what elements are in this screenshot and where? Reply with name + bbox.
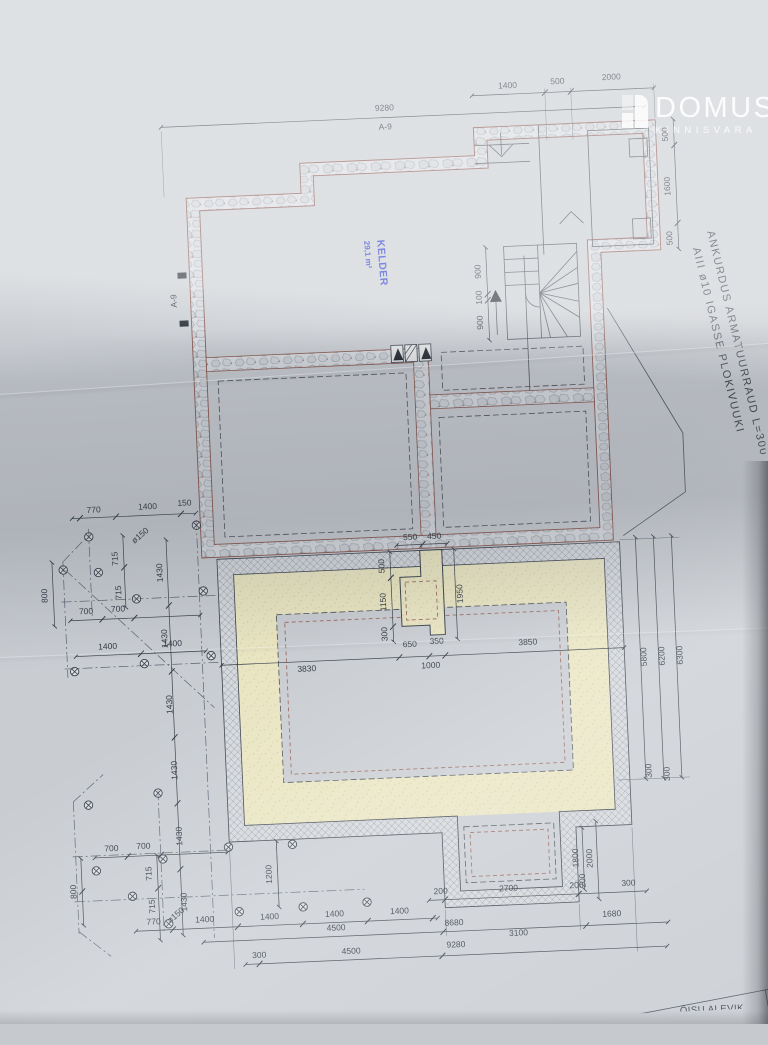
stair-direction-arrow bbox=[489, 290, 502, 303]
section-mark bbox=[177, 272, 186, 278]
dimension-label: 1200 bbox=[263, 864, 274, 884]
pile-marker bbox=[299, 903, 308, 912]
dimension-label: 350 bbox=[429, 636, 444, 647]
dimension-label: 150 bbox=[177, 497, 192, 508]
dimension-label: 500 bbox=[550, 76, 565, 87]
pile-marker bbox=[192, 521, 201, 530]
dimension-label: 1400 bbox=[325, 908, 345, 919]
logo-text: DOMUS KINNISVARA bbox=[655, 94, 768, 136]
pile-marker bbox=[235, 907, 244, 916]
dimension-label: 550 bbox=[403, 532, 418, 543]
pile-marker bbox=[132, 594, 141, 603]
dimension-label: 1430 bbox=[164, 695, 175, 715]
room-area: 29,1 m² bbox=[362, 241, 373, 270]
dimension-label: 9280 bbox=[446, 939, 466, 950]
dimension-label: 2700 bbox=[499, 883, 519, 894]
dimension-label: 715 bbox=[143, 866, 154, 881]
stair-direction-line bbox=[496, 302, 497, 335]
room-stamp: KELDER 29,1 m² bbox=[362, 239, 390, 287]
pile-marker bbox=[92, 867, 101, 876]
dimension-label: 1400 bbox=[390, 905, 410, 916]
pile-marker bbox=[199, 587, 208, 596]
dimension-label: 3100 bbox=[509, 927, 529, 938]
dimension-label: 100 bbox=[473, 290, 484, 305]
pile-marker bbox=[164, 919, 173, 928]
room-name: KELDER bbox=[374, 239, 390, 286]
dimension-label: 2000 bbox=[602, 71, 622, 82]
dimension-label: 2000 bbox=[584, 848, 595, 868]
dimension-label: 300 bbox=[661, 766, 672, 781]
dimension-label: 500 bbox=[664, 231, 675, 246]
dimension-label: 650 bbox=[402, 639, 417, 650]
dimension-label: 700 bbox=[136, 840, 151, 851]
dimension-label: 1950 bbox=[454, 584, 465, 604]
dimension-label: 1400 bbox=[498, 80, 518, 91]
dimension-label: 900 bbox=[475, 315, 486, 330]
pile-marker bbox=[363, 898, 372, 907]
watermark-logo: DOMUS KINNISVARA bbox=[622, 94, 768, 136]
pile-marker bbox=[70, 667, 79, 676]
dimension-label: 300 bbox=[643, 763, 654, 778]
winder-stair bbox=[504, 243, 581, 339]
dimension-label: 300 bbox=[252, 950, 267, 961]
dimension-label: 1400 bbox=[195, 914, 215, 925]
dimension-label: 3850 bbox=[518, 636, 538, 647]
annotation-leader-line bbox=[607, 305, 687, 536]
dimension-label: 715 bbox=[113, 585, 124, 600]
annex-details bbox=[473, 120, 659, 392]
dimension-label: 450 bbox=[427, 531, 442, 542]
logo-subtitle: KINNISVARA bbox=[655, 125, 768, 136]
drawing-sheet: 9280A-9140050020005001600500900100900A-9… bbox=[0, 0, 768, 1040]
dimension-label: 500 bbox=[376, 559, 387, 574]
dimension-label: 6200 bbox=[656, 646, 667, 666]
dimension-label: 1430 bbox=[154, 563, 165, 583]
dimension-label: ø150 bbox=[129, 525, 150, 545]
dimension-label: 300 bbox=[621, 877, 636, 888]
pile-marker bbox=[224, 843, 233, 852]
logo-name: DOMUS bbox=[655, 94, 768, 123]
dimension-label: 200 bbox=[433, 886, 448, 897]
floor-plan-drawing: 9280A-9140050020005001600500900100900A-9… bbox=[0, 0, 768, 1040]
dimension-label: 770 bbox=[86, 504, 101, 515]
dimension-label: 1430 bbox=[159, 629, 170, 649]
pile-marker bbox=[128, 892, 137, 901]
interior-wall-left bbox=[206, 348, 436, 545]
pile-marker bbox=[288, 840, 297, 849]
dimension-label: 1400 bbox=[260, 911, 280, 922]
dimension-label: 715 bbox=[109, 551, 120, 566]
pile-marker bbox=[154, 789, 163, 798]
pile-marker bbox=[140, 659, 149, 668]
dimension-label: 715 bbox=[147, 899, 158, 914]
dimension-label: 4500 bbox=[341, 945, 361, 956]
dimension-label: 800 bbox=[68, 884, 79, 899]
dimension-label: 4500 bbox=[326, 922, 346, 933]
pile-marker bbox=[94, 568, 103, 577]
dimension-label: 200 bbox=[569, 880, 584, 891]
dimension-label: 6300 bbox=[674, 645, 685, 665]
dimension-label: 3830 bbox=[297, 663, 317, 674]
vent-markers bbox=[391, 344, 432, 363]
dimension-label: 1400 bbox=[138, 501, 158, 512]
dimension-label: 1600 bbox=[662, 176, 673, 196]
dimension-label: 1800 bbox=[570, 848, 581, 868]
dimension-label: 1000 bbox=[421, 660, 441, 671]
dimension-label: 1680 bbox=[602, 908, 622, 919]
dimension-label: 300 bbox=[379, 627, 390, 642]
logo-mark-icon bbox=[622, 94, 649, 132]
dimension-label: 1430 bbox=[169, 760, 180, 780]
dimension-label: 5800 bbox=[638, 647, 649, 667]
dimension-label: 700 bbox=[79, 606, 94, 617]
pile-marker bbox=[59, 566, 68, 575]
dimension-label: 1150 bbox=[378, 593, 389, 612]
dimension-label: 9280 bbox=[375, 102, 395, 113]
dimension-label: 8680 bbox=[444, 917, 464, 928]
dimension-label: A-9 bbox=[168, 294, 179, 308]
pile-marker bbox=[84, 533, 93, 542]
dashed-room-outlines bbox=[217, 346, 590, 537]
pile-marker bbox=[84, 801, 93, 810]
dimension-label: 700 bbox=[104, 843, 119, 854]
dimension-label: 900 bbox=[472, 264, 483, 279]
dimension-label: 700 bbox=[111, 603, 126, 614]
dimension-label: 800 bbox=[39, 588, 50, 603]
dimension-label: 770 bbox=[146, 916, 161, 927]
pile-marker bbox=[159, 855, 168, 864]
section-mark bbox=[179, 320, 188, 326]
dimension-label: 1400 bbox=[98, 641, 118, 652]
dimension-label: A-9 bbox=[378, 121, 392, 132]
interior-wall-right bbox=[430, 388, 594, 409]
dimension-label: 1430 bbox=[174, 826, 185, 846]
pile-marker bbox=[207, 651, 216, 660]
